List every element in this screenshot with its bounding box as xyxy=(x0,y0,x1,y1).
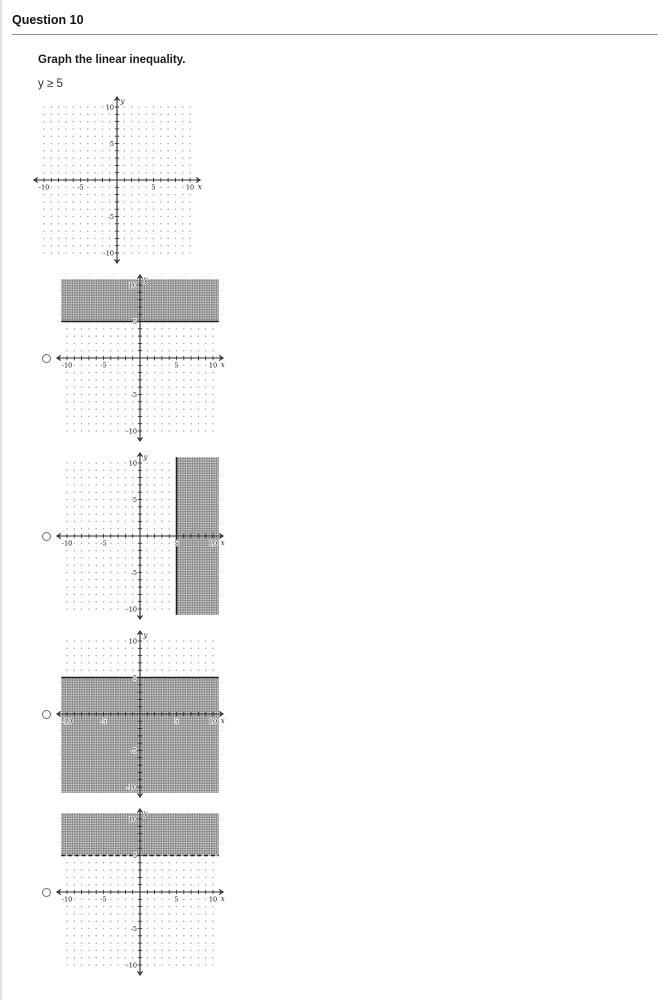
svg-text:-10: -10 xyxy=(127,605,137,613)
svg-text:-5: -5 xyxy=(131,391,137,399)
svg-text:10: 10 xyxy=(129,281,137,289)
question-figure: -10-5510105-5-10xy xyxy=(32,95,664,265)
option-radio[interactable] xyxy=(42,710,51,719)
svg-text:10: 10 xyxy=(186,184,194,192)
question-title: Question 10 xyxy=(12,0,658,34)
answer-options: -10-5510105-5-10xy -10-5510105-5-10xy -1… xyxy=(38,273,664,977)
svg-text:y: y xyxy=(143,453,149,461)
svg-text:5: 5 xyxy=(174,896,178,904)
answer-option-b[interactable]: -10-5510105-5-10xy xyxy=(42,451,225,621)
blank-grid-graph: -10-5510105-5-10xy xyxy=(32,95,202,265)
option-graph-b: -10-5510105-5-10xy xyxy=(55,451,225,621)
svg-text:-5: -5 xyxy=(100,540,106,548)
svg-text:10: 10 xyxy=(129,459,137,467)
svg-text:10: 10 xyxy=(129,637,137,645)
svg-text:x: x xyxy=(221,717,225,725)
svg-text:-5: -5 xyxy=(131,925,137,933)
question-header: Question 10 xyxy=(12,0,658,35)
svg-text:10: 10 xyxy=(209,896,217,904)
answer-option-d[interactable]: -10-5510105-5-10xy xyxy=(42,807,225,977)
svg-text:x: x xyxy=(221,539,225,547)
svg-text:5: 5 xyxy=(133,674,137,682)
answer-option-a[interactable]: -10-5510105-5-10xy xyxy=(42,273,225,443)
svg-text:y: y xyxy=(120,97,126,105)
svg-text:-10: -10 xyxy=(62,896,72,904)
svg-text:-5: -5 xyxy=(131,569,137,577)
svg-text:-10: -10 xyxy=(62,718,72,726)
option-graph-c: -10-5510105-5-10xy xyxy=(55,629,225,799)
svg-text:-5: -5 xyxy=(131,747,137,755)
svg-text:5: 5 xyxy=(133,496,137,504)
option-radio[interactable] xyxy=(42,354,51,363)
svg-text:-10: -10 xyxy=(62,362,72,370)
question-prompt: Graph the linear inequality. xyxy=(38,54,664,66)
svg-text:5: 5 xyxy=(174,718,178,726)
svg-text:-10: -10 xyxy=(104,249,114,257)
svg-text:-10: -10 xyxy=(127,783,137,791)
svg-text:y: y xyxy=(143,631,149,639)
svg-text:-5: -5 xyxy=(100,896,106,904)
svg-text:5: 5 xyxy=(174,362,178,370)
answer-option-c[interactable]: -10-5510105-5-10xy xyxy=(42,629,225,799)
svg-text:-10: -10 xyxy=(39,184,49,192)
svg-text:x: x xyxy=(221,895,225,903)
svg-text:-10: -10 xyxy=(127,961,137,969)
svg-text:5: 5 xyxy=(174,540,178,548)
svg-text:-10: -10 xyxy=(62,540,72,548)
svg-text:x: x xyxy=(221,361,225,369)
svg-text:-10: -10 xyxy=(127,427,137,435)
question-page: Question 10 Graph the linear inequality.… xyxy=(0,0,664,1000)
svg-text:5: 5 xyxy=(133,318,137,326)
svg-text:10: 10 xyxy=(209,540,217,548)
svg-text:5: 5 xyxy=(110,140,114,148)
option-graph-d: -10-5510105-5-10xy xyxy=(55,807,225,977)
svg-text:-5: -5 xyxy=(108,213,114,221)
svg-text:5: 5 xyxy=(151,184,155,192)
svg-text:-5: -5 xyxy=(77,184,83,192)
option-radio[interactable] xyxy=(42,888,51,897)
svg-text:x: x xyxy=(198,183,202,191)
svg-text:10: 10 xyxy=(209,718,217,726)
svg-text:-5: -5 xyxy=(100,362,106,370)
svg-text:10: 10 xyxy=(106,103,114,111)
inequality-text: y ≥ 5 xyxy=(38,78,664,90)
option-graph-a: -10-5510105-5-10xy xyxy=(55,273,225,443)
question-body: Graph the linear inequality. y ≥ 5 -10-5… xyxy=(2,54,664,977)
svg-text:5: 5 xyxy=(133,852,137,860)
option-radio[interactable] xyxy=(42,532,51,541)
svg-text:10: 10 xyxy=(209,362,217,370)
svg-text:-5: -5 xyxy=(100,718,106,726)
svg-text:10: 10 xyxy=(129,815,137,823)
